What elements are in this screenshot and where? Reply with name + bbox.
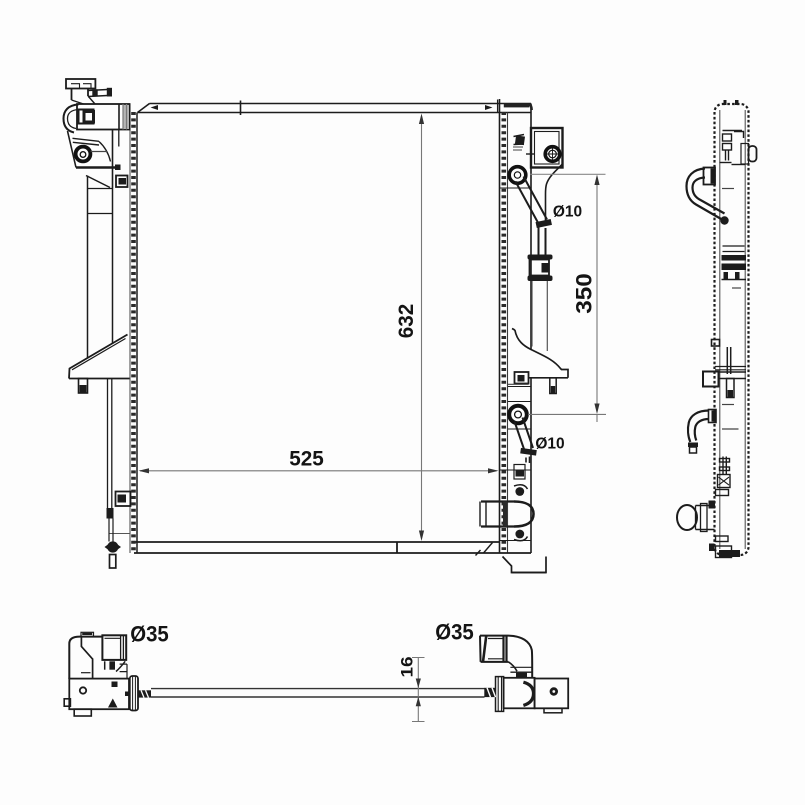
svg-text:16: 16 [399,657,417,678]
svg-text:Ø10: Ø10 [535,436,564,453]
svg-text:525: 525 [289,448,324,471]
svg-text:Ø10: Ø10 [553,204,582,221]
svg-text:Ø35: Ø35 [130,622,169,647]
svg-text:632: 632 [395,304,418,339]
svg-text:Ø35: Ø35 [435,620,474,645]
svg-text:350: 350 [572,273,597,314]
